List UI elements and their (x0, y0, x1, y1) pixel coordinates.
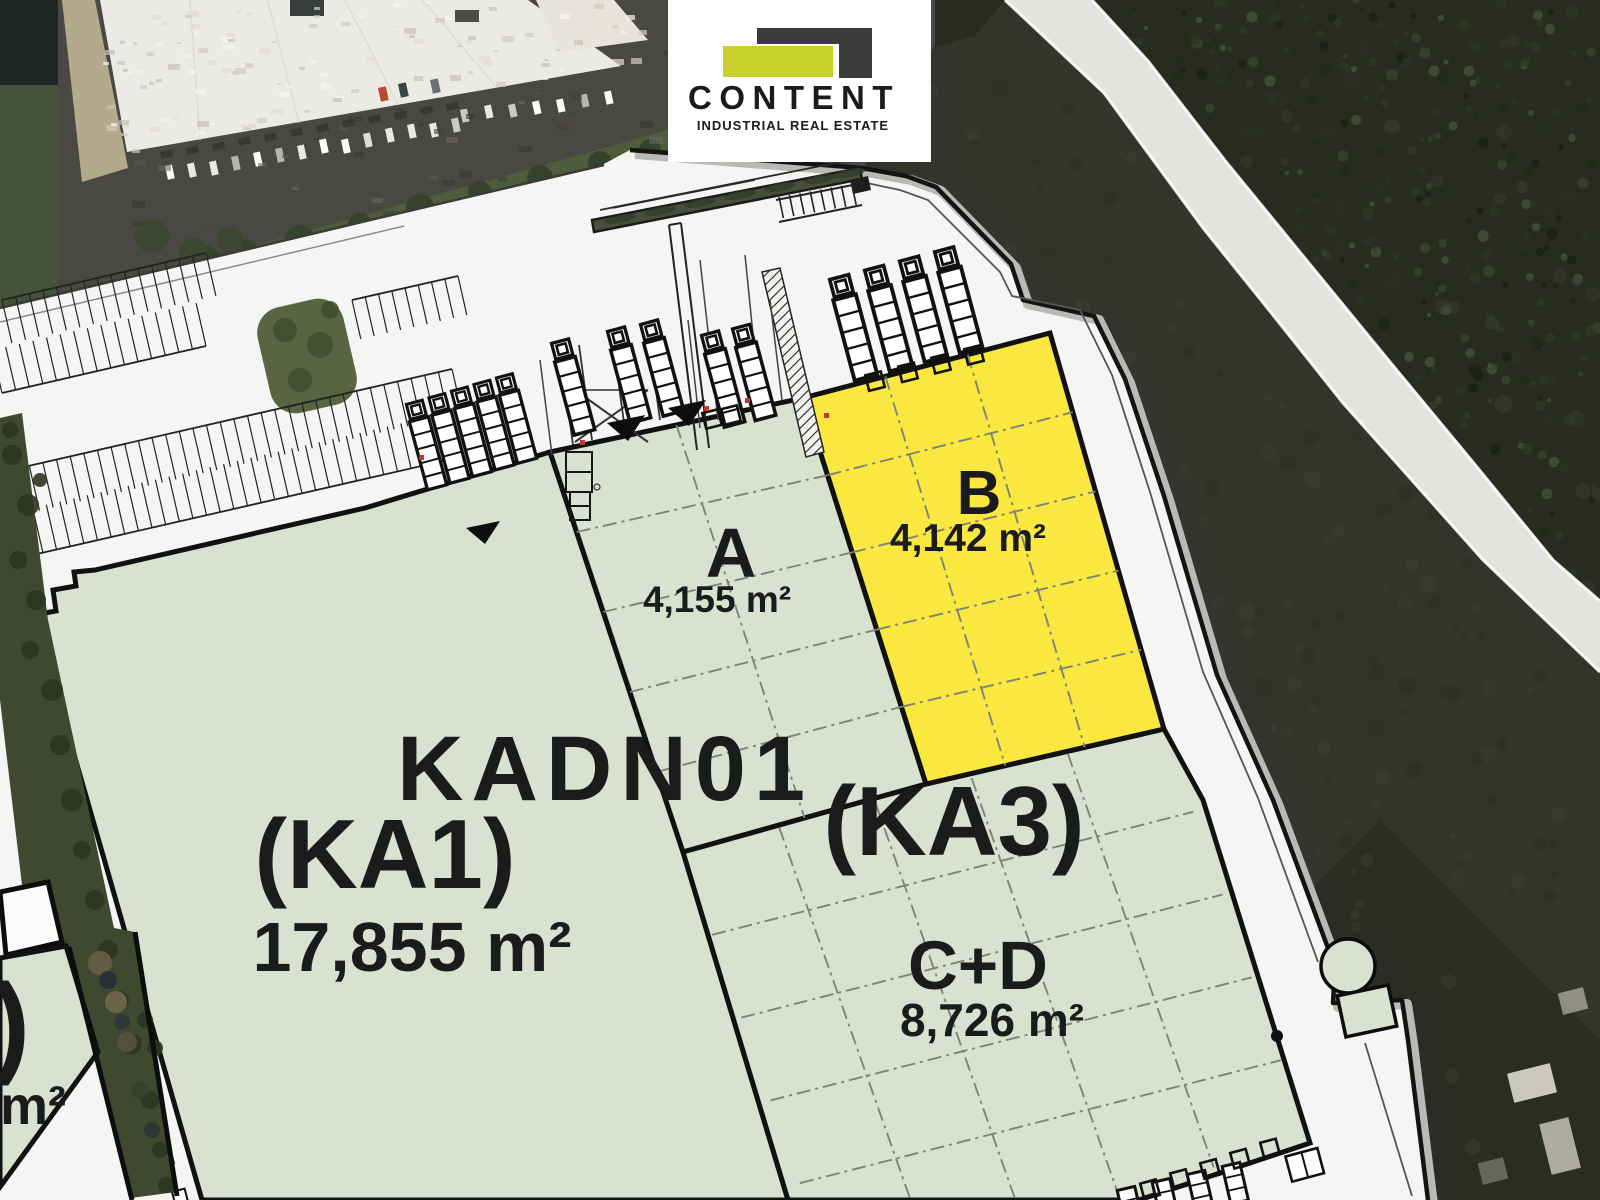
svg-text:CONTENT: CONTENT (688, 79, 900, 116)
svg-text:m²: m² (0, 1076, 66, 1136)
svg-text:INDUSTRIAL REAL ESTATE: INDUSTRIAL REAL ESTATE (697, 118, 889, 133)
svg-text:(KA3): (KA3) (823, 766, 1084, 876)
svg-text:(KA1): (KA1) (254, 799, 515, 909)
svg-text:): ) (0, 961, 30, 1086)
svg-text:17,855 m²: 17,855 m² (252, 908, 571, 986)
svg-text:4,155 m²: 4,155 m² (643, 579, 791, 620)
svg-text:4,142 m²: 4,142 m² (890, 517, 1046, 560)
svg-text:8,726 m²: 8,726 m² (900, 994, 1084, 1046)
svg-text:C+D: C+D (908, 927, 1048, 1004)
